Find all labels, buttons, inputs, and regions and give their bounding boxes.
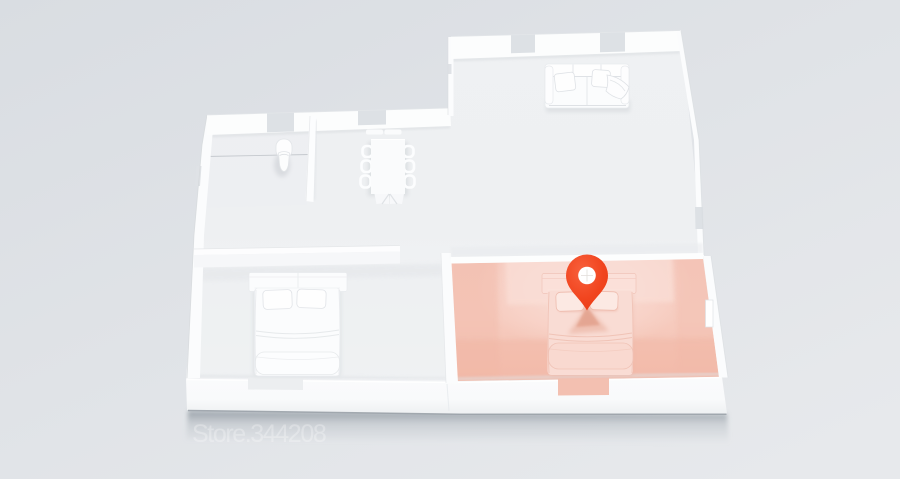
svg-text:Store.344208: Store.344208 <box>192 420 326 448</box>
